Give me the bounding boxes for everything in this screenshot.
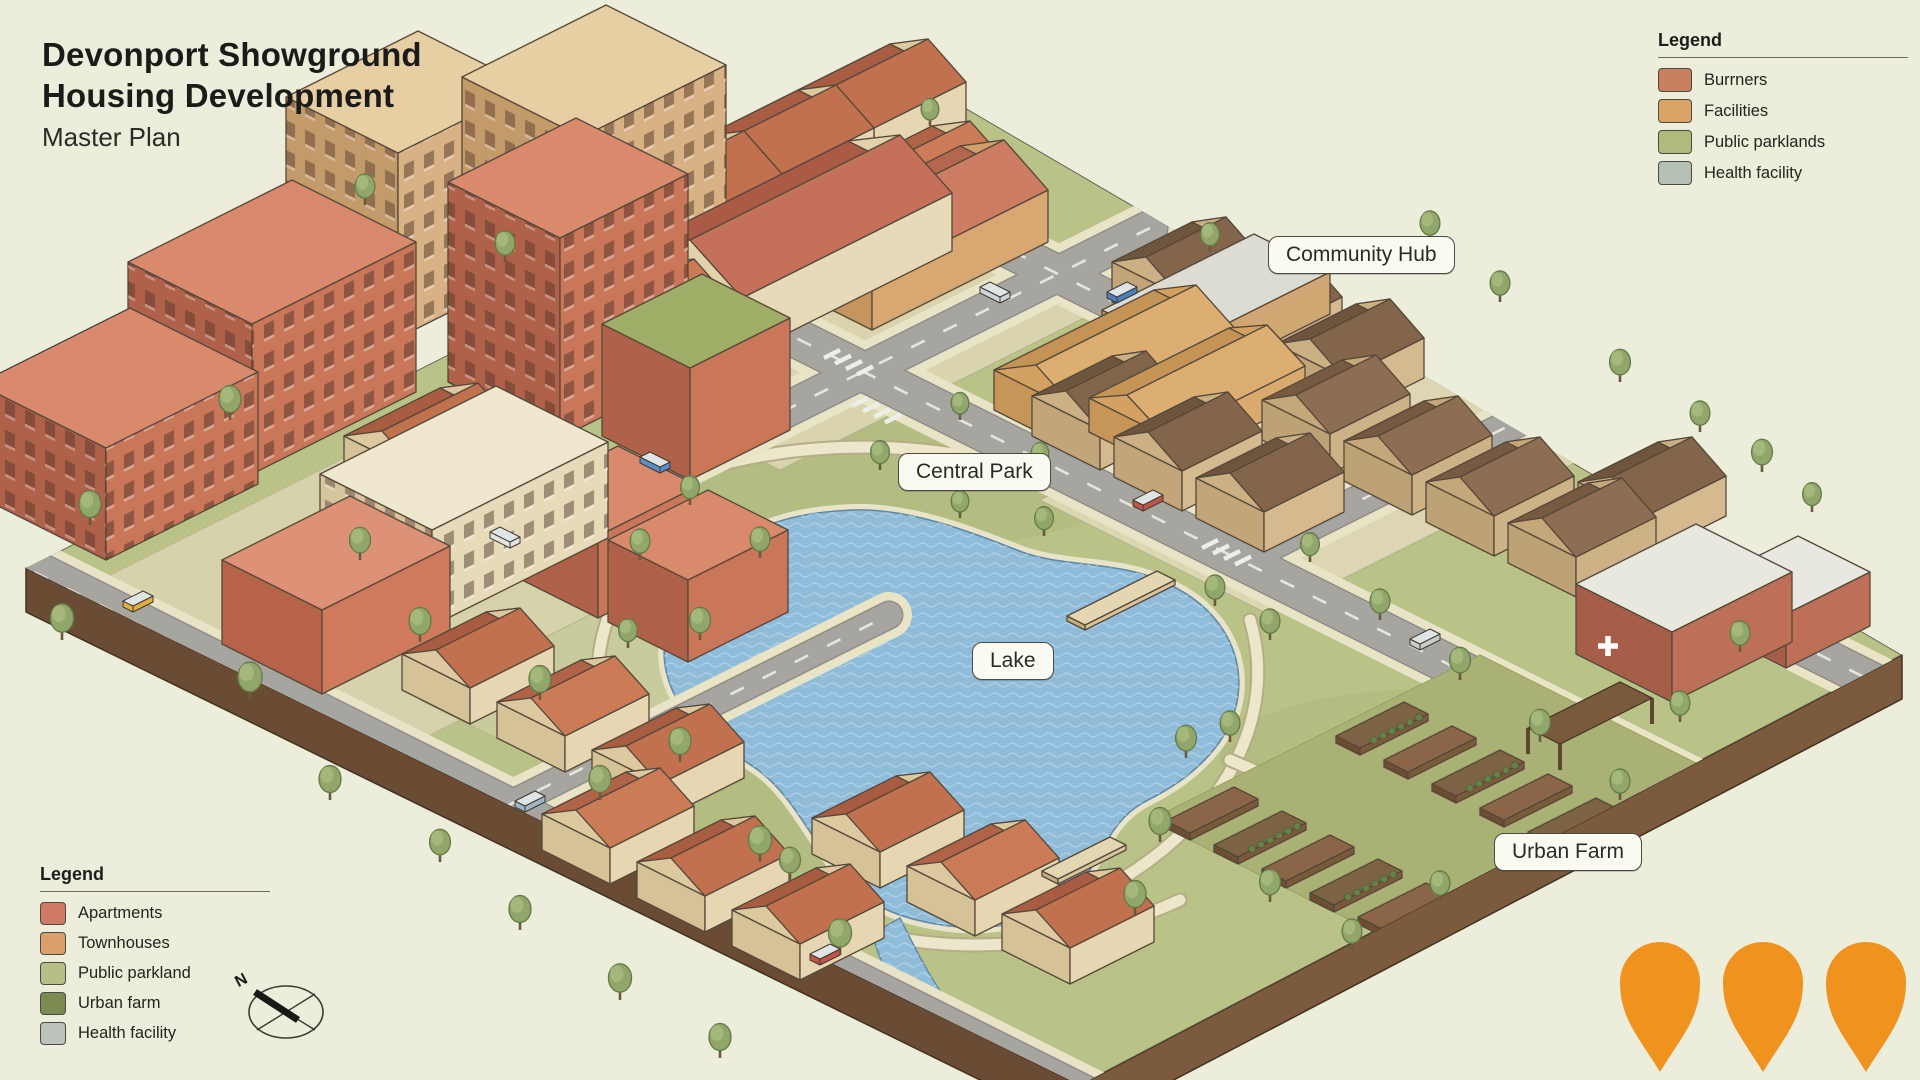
map-pin[interactable] — [1620, 942, 1700, 1072]
page-title: Devonport Showground — [42, 34, 422, 75]
label-community-hub[interactable]: Community Hub — [1268, 236, 1455, 274]
page-title-line2: Housing Development — [42, 75, 422, 116]
legend-rule — [40, 891, 270, 892]
legend-title: Legend — [40, 864, 270, 891]
legend-rule — [1658, 57, 1908, 58]
legend-item-facilities: Facilities — [1658, 99, 1908, 123]
label-urban-farm[interactable]: Urban Farm — [1494, 833, 1642, 871]
label-central-park[interactable]: Central Park — [898, 453, 1051, 491]
label-lake[interactable]: Lake — [972, 642, 1054, 680]
map-pin[interactable] — [1723, 942, 1803, 1072]
map-pin[interactable] — [1826, 942, 1906, 1072]
compass-rose: N — [206, 952, 366, 1062]
site-map-illustration — [0, 0, 1920, 1080]
legend-swatch — [40, 962, 66, 985]
legend-title: Legend — [1658, 30, 1908, 57]
legend-swatch — [1658, 99, 1692, 123]
legend-swatch — [40, 932, 66, 955]
legend-swatch — [40, 902, 66, 925]
page-subtitle: Master Plan — [42, 120, 422, 154]
compass-north-label: N — [232, 971, 250, 991]
legend-item-apartments: Apartments — [40, 902, 270, 925]
map-pins — [1608, 938, 1918, 1080]
legend-swatch — [1658, 161, 1692, 185]
legend-top-right: Legend Burrners Facilities Public parkla… — [1658, 30, 1908, 192]
legend-swatch — [1658, 68, 1692, 92]
legend-swatch — [1658, 130, 1692, 154]
page-title-block: Devonport Showground Housing Development… — [42, 34, 422, 154]
legend-item-health-facility: Health facility — [1658, 161, 1908, 185]
legend-item-burrners: Burrners — [1658, 68, 1908, 92]
legend-swatch — [40, 992, 66, 1015]
master-plan-page: { "title": { "line1": "Devonport Showgro… — [0, 0, 1920, 1080]
legend-swatch — [40, 1022, 66, 1045]
legend-item-public-parklands: Public parklands — [1658, 130, 1908, 154]
